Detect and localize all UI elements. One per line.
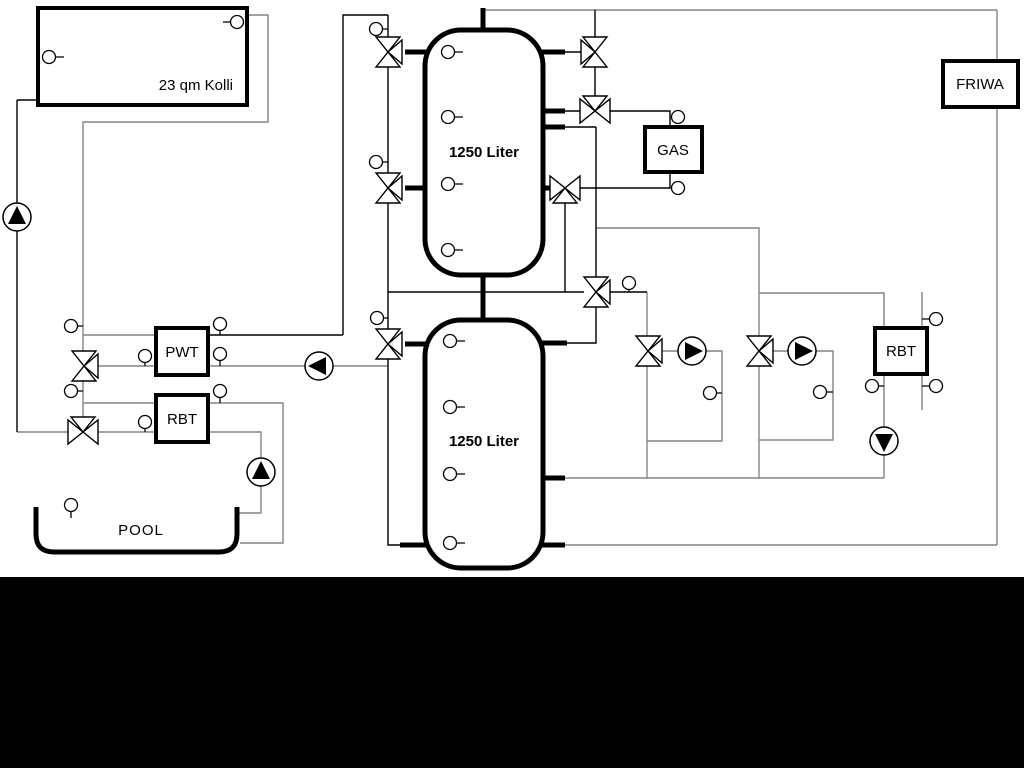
pool-label: POOL xyxy=(118,522,164,539)
temperature-sensor-icon xyxy=(672,111,685,124)
temperature-sensor-icon xyxy=(442,46,455,59)
three-way-valve-icon-tank1-right-top xyxy=(581,37,607,67)
temperature-sensor-icon xyxy=(704,387,717,400)
rbt-right-label: RBT xyxy=(886,343,916,360)
temperature-sensor-icon xyxy=(214,348,227,361)
heating-system-schematic: 23 qm Kolli 1250 Liter 1250 Liter GAS FR… xyxy=(0,0,1024,768)
three-way-valve-icon-pwt xyxy=(72,351,98,381)
pump-icon-pwt-secondary xyxy=(305,352,333,380)
temperature-sensor-icon xyxy=(231,16,244,29)
temperature-sensor-icon xyxy=(623,277,636,290)
temperature-sensor-icon xyxy=(930,313,943,326)
gas-boiler-label: GAS xyxy=(657,142,689,159)
pwt-label: PWT xyxy=(165,344,198,361)
temperature-sensor-icon xyxy=(444,335,457,348)
temperature-sensor-icon xyxy=(444,537,457,550)
temperature-sensor-icon xyxy=(43,51,56,64)
pump-icon-pool xyxy=(247,458,275,486)
three-way-valve-icon-tank2-left xyxy=(376,329,402,359)
buffer-tank-top-label: 1250 Liter xyxy=(449,144,519,161)
three-way-valve-icon-gas-supply xyxy=(580,96,610,123)
temperature-sensor-icon xyxy=(371,312,384,325)
solar-collector-label: 23 qm Kolli xyxy=(159,77,233,94)
pump-icon-solar xyxy=(3,203,31,231)
three-way-valve-icon-heating-circuit-1 xyxy=(636,336,662,366)
temperature-sensor-icon xyxy=(65,499,78,512)
friwa-label: FRIWA xyxy=(956,76,1004,93)
three-way-valve-icon-gas-return xyxy=(550,176,580,203)
temperature-sensor-icon xyxy=(139,416,152,429)
temperature-sensor-icon xyxy=(672,182,685,195)
footer-band xyxy=(0,577,1024,768)
temperature-sensor-icon xyxy=(370,156,383,169)
temperature-sensor-icon xyxy=(65,320,78,333)
temperature-sensor-icon xyxy=(442,178,455,191)
temperature-sensor-icon xyxy=(814,386,827,399)
pump-icon-heating-circuit-1 xyxy=(678,337,706,365)
rbt-left-label: RBT xyxy=(167,411,197,428)
temperature-sensor-icon xyxy=(442,244,455,257)
three-way-valve-icon-tank1-left-top xyxy=(376,37,402,67)
pump-icon-rbt-right xyxy=(870,427,898,455)
three-way-valve-icon-heating-supply xyxy=(584,277,610,307)
temperature-sensor-icon xyxy=(139,350,152,363)
temperature-sensor-icon xyxy=(65,385,78,398)
temperature-sensor-icon xyxy=(930,380,943,393)
temperature-sensor-icon xyxy=(866,380,879,393)
temperature-sensor-icon xyxy=(214,385,227,398)
temperature-sensor-icon xyxy=(444,468,457,481)
buffer-tank-bottom-label: 1250 Liter xyxy=(449,433,519,450)
schematic-page: 23 qm Kolli 1250 Liter 1250 Liter GAS FR… xyxy=(0,0,1024,768)
three-way-valve-icon-heating-circuit-2 xyxy=(747,336,773,366)
three-way-valve-icon-rbt-left xyxy=(68,417,98,444)
temperature-sensor-icon xyxy=(214,318,227,331)
temperature-sensor-icon xyxy=(444,401,457,414)
pump-icon-heating-circuit-2 xyxy=(788,337,816,365)
temperature-sensor-icon xyxy=(442,111,455,124)
temperature-sensor-icon xyxy=(370,23,383,36)
three-way-valve-icon-tank1-left-bottom xyxy=(376,173,402,203)
